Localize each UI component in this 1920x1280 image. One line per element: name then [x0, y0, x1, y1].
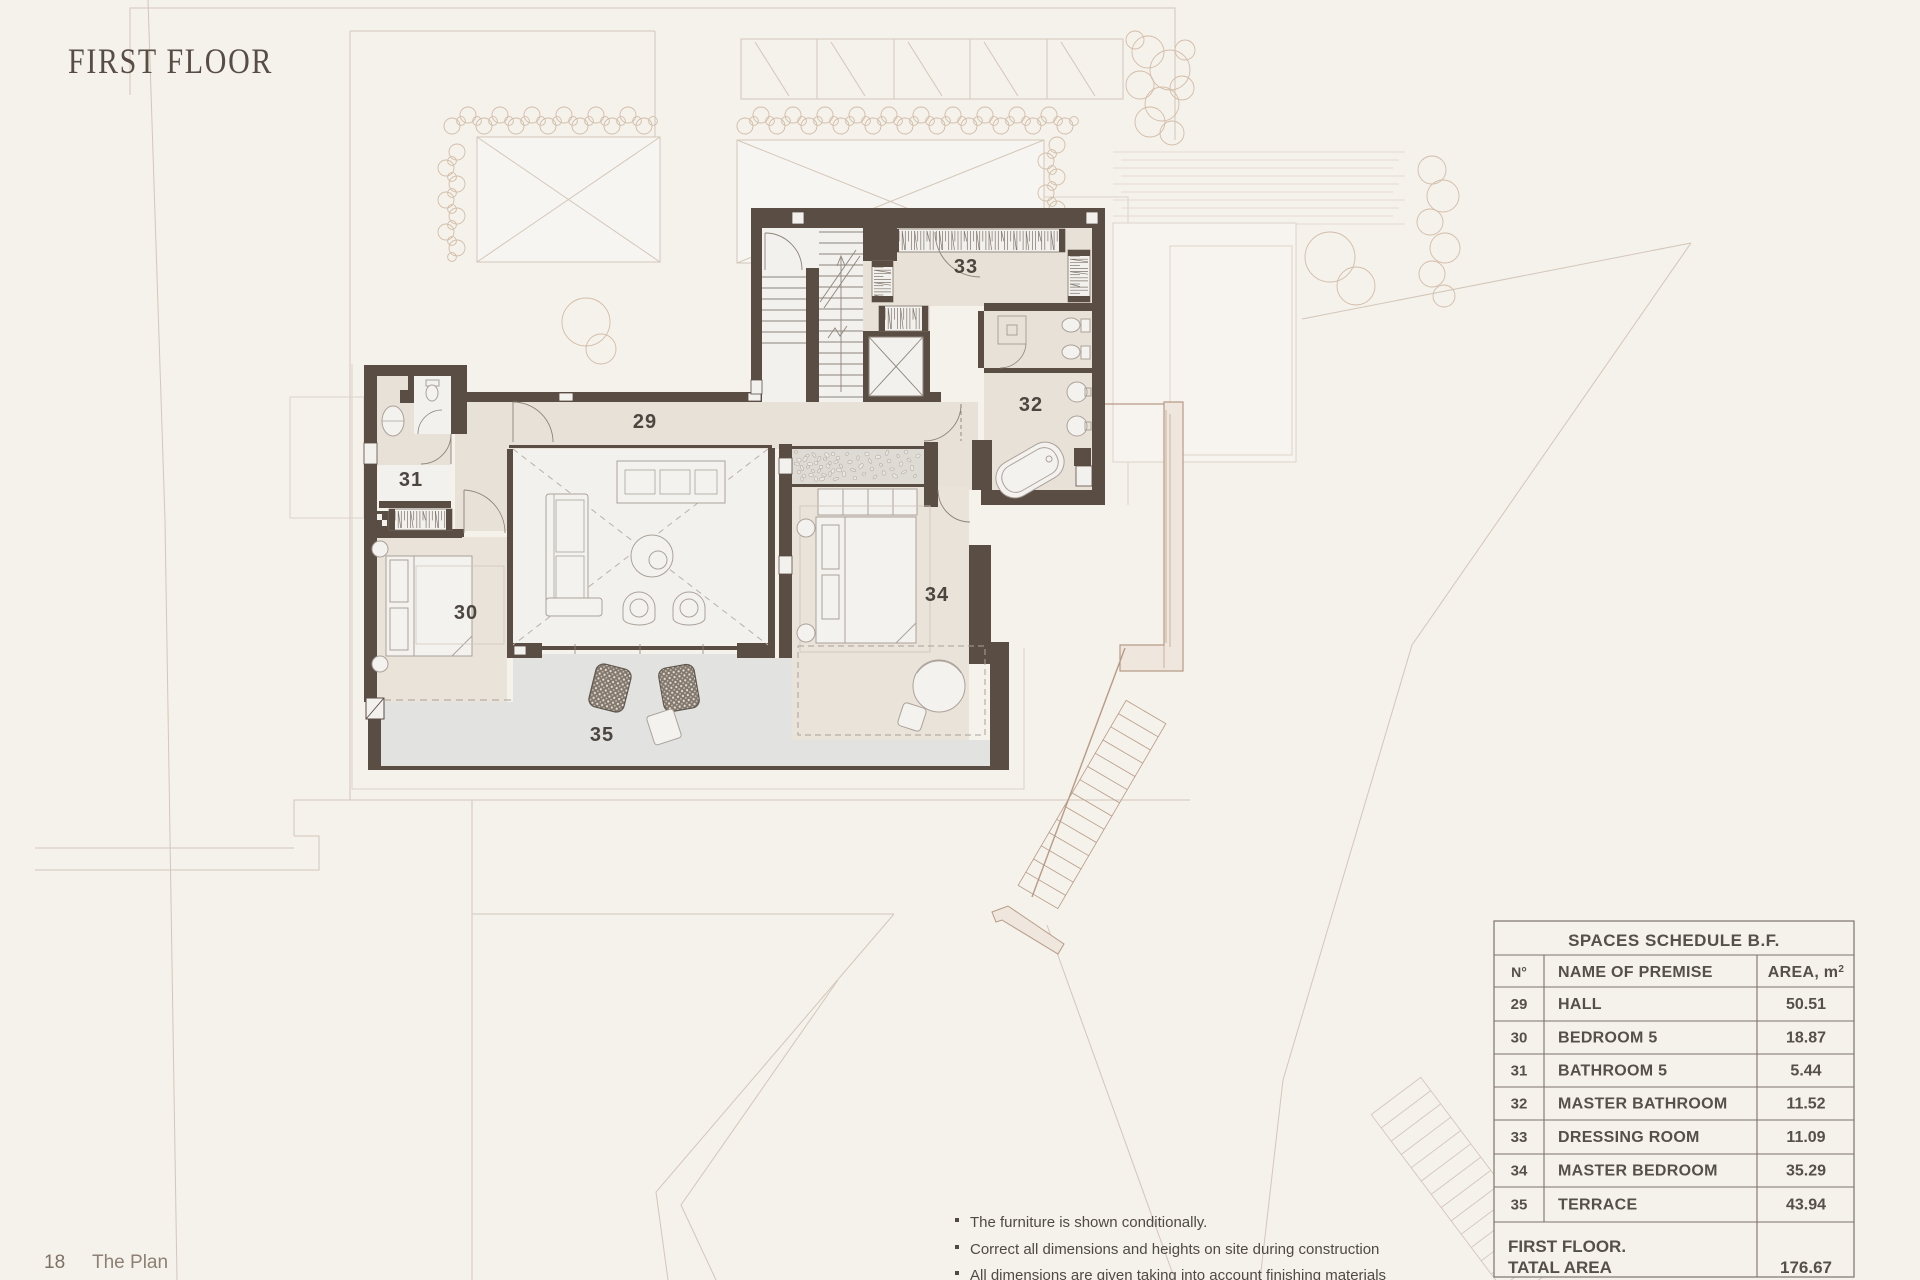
svg-text:SPACES SCHEDULE B.F.: SPACES SCHEDULE B.F.: [1568, 931, 1780, 950]
svg-text:50.51: 50.51: [1786, 996, 1826, 1013]
svg-text:BATHROOM 5: BATHROOM 5: [1558, 1063, 1667, 1080]
svg-text:DRESSING ROOM: DRESSING ROOM: [1558, 1129, 1700, 1146]
svg-text:31: 31: [399, 469, 423, 491]
svg-text:34: 34: [1511, 1163, 1528, 1180]
svg-text:FIRST FLOOR: FIRST FLOOR: [68, 41, 273, 81]
svg-text:35: 35: [1511, 1197, 1528, 1214]
svg-text:HALL: HALL: [1558, 996, 1602, 1013]
svg-text:33: 33: [954, 256, 978, 278]
svg-text:The Plan: The Plan: [92, 1252, 168, 1273]
svg-text:31: 31: [1511, 1063, 1528, 1080]
svg-text:35: 35: [590, 724, 614, 746]
svg-text:34: 34: [925, 584, 949, 606]
svg-text:N°: N°: [1511, 964, 1527, 980]
svg-text:30: 30: [454, 602, 478, 624]
svg-text:All dimensions are given takin: All dimensions are given taking into acc…: [970, 1267, 1386, 1280]
svg-text:MASTER BATHROOM: MASTER BATHROOM: [1558, 1096, 1728, 1113]
svg-text:11.52: 11.52: [1786, 1096, 1825, 1113]
svg-text:AREA, m2: AREA, m2: [1768, 964, 1845, 981]
svg-text:TATAL AREA: TATAL AREA: [1508, 1258, 1612, 1277]
svg-text:MASTER BEDROOM: MASTER BEDROOM: [1558, 1163, 1718, 1180]
svg-text:176.67: 176.67: [1780, 1258, 1832, 1277]
svg-text:33: 33: [1511, 1129, 1528, 1146]
svg-text:32: 32: [1019, 394, 1043, 416]
svg-text:5.44: 5.44: [1790, 1063, 1821, 1080]
svg-text:30: 30: [1511, 1030, 1528, 1047]
svg-text:43.94: 43.94: [1786, 1197, 1826, 1214]
svg-text:29: 29: [633, 411, 657, 433]
svg-text:29: 29: [1511, 996, 1528, 1013]
svg-text:BEDROOM 5: BEDROOM 5: [1558, 1030, 1658, 1047]
svg-text:NAME OF PREMISE: NAME OF PREMISE: [1558, 964, 1713, 981]
svg-text:FIRST FLOOR.: FIRST FLOOR.: [1508, 1237, 1626, 1256]
svg-text:35.29: 35.29: [1786, 1163, 1826, 1180]
svg-text:The furniture is shown conditi: The furniture is shown conditionally.: [970, 1214, 1207, 1231]
svg-text:18.87: 18.87: [1786, 1030, 1826, 1047]
svg-text:11.09: 11.09: [1786, 1129, 1825, 1146]
svg-text:Correct all dimensions and hei: Correct all dimensions and heights on si…: [970, 1241, 1379, 1258]
svg-text:TERRACE: TERRACE: [1558, 1197, 1637, 1214]
svg-text:32: 32: [1511, 1096, 1528, 1113]
svg-text:18: 18: [44, 1252, 65, 1273]
